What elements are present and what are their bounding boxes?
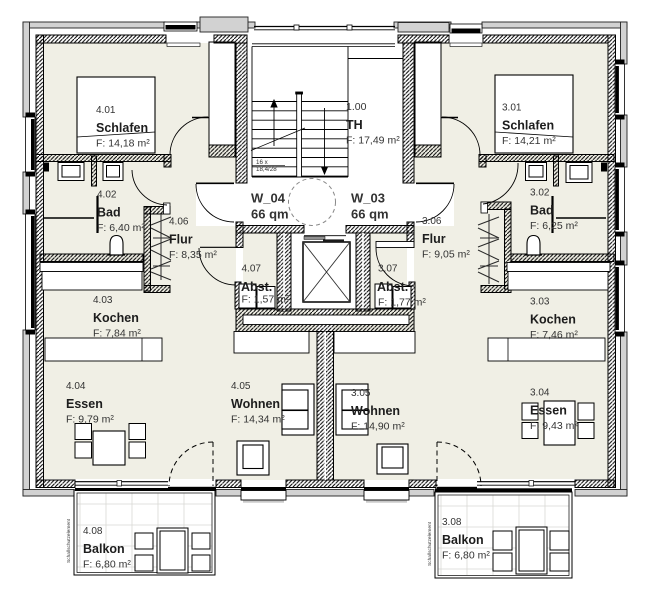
svg-text:F: 14,90 m²: F: 14,90 m² [351,421,405,433]
svg-text:4.01: 4.01 [96,105,116,116]
svg-text:66 qm: 66 qm [251,207,289,222]
svg-text:Schlafen: Schlafen [502,119,554,133]
svg-text:Essen: Essen [66,397,103,411]
svg-text:F: 6,80 m²: F: 6,80 m² [442,550,490,562]
svg-text:F: 14,21 m²: F: 14,21 m² [502,135,556,147]
svg-text:F: 14,18 m²: F: 14,18 m² [96,138,150,150]
svg-text:Kochen: Kochen [530,313,576,327]
svg-text:F: 7,84 m²: F: 7,84 m² [93,328,141,340]
svg-text:F: 8,35 m²: F: 8,35 m² [169,249,217,261]
svg-text:Bad: Bad [530,204,554,218]
svg-text:3.07: 3.07 [378,264,398,275]
svg-text:F: 9,43 m²: F: 9,43 m² [530,420,578,432]
svg-text:Essen: Essen [530,404,567,418]
svg-text:F: 1,77 m²: F: 1,77 m² [378,297,426,309]
svg-text:F: 7,46 m²: F: 7,46 m² [530,329,578,341]
svg-text:F: 6,40 m²: F: 6,40 m² [97,222,145,234]
svg-text:4.04: 4.04 [66,381,86,392]
svg-text:W_04: W_04 [251,191,286,206]
svg-text:4.08: 4.08 [83,526,103,537]
svg-text:W_03: W_03 [351,191,385,206]
svg-text:4.03: 4.03 [93,295,113,306]
svg-text:F: 6,80 m²: F: 6,80 m² [83,559,131,571]
svg-text:18,4/28: 18,4/28 [256,166,277,173]
svg-text:F: 6,25 m²: F: 6,25 m² [530,220,578,232]
svg-text:Flur: Flur [422,232,446,246]
svg-text:3.04: 3.04 [530,388,550,399]
svg-text:3.06: 3.06 [422,216,442,227]
svg-text:Abst.: Abst. [241,280,272,294]
svg-text:Schlafen: Schlafen [96,121,148,135]
svg-text:Balkon: Balkon [83,542,125,556]
svg-text:3.02: 3.02 [530,188,550,199]
svg-text:3.05: 3.05 [351,388,371,399]
svg-text:Kochen: Kochen [93,311,139,325]
svg-text:3.08: 3.08 [442,517,462,528]
svg-text:TH: TH [346,118,363,132]
svg-text:F: 1,57 m²: F: 1,57 m² [242,294,290,306]
svg-text:66 qm: 66 qm [351,207,389,222]
svg-text:4.06: 4.06 [169,217,189,228]
svg-text:F: 9,79 m²: F: 9,79 m² [66,414,114,426]
svg-text:Wohnen: Wohnen [231,397,280,411]
svg-text:Balkon: Balkon [442,533,484,547]
svg-text:4.02: 4.02 [97,190,117,201]
svg-text:Schallschutzelement: Schallschutzelement [427,521,433,566]
svg-text:Bad: Bad [97,206,121,220]
svg-text:Schallschutzelement: Schallschutzelement [66,518,72,563]
svg-text:3.03: 3.03 [530,297,550,308]
svg-text:16 x: 16 x [256,159,269,166]
svg-text:F: 9,05 m²: F: 9,05 m² [422,249,470,261]
svg-text:Wohnen: Wohnen [351,404,400,418]
svg-text:3.01: 3.01 [502,103,522,114]
svg-text:F: 17,49 m²: F: 17,49 m² [346,135,400,147]
svg-text:F: 14,34 m²: F: 14,34 m² [231,414,285,426]
svg-text:Flur: Flur [169,233,193,247]
svg-text:4.05: 4.05 [231,381,251,392]
svg-text:4.07: 4.07 [242,264,262,275]
svg-text:Abst.: Abst. [377,280,408,294]
svg-text:1.00: 1.00 [346,101,367,113]
